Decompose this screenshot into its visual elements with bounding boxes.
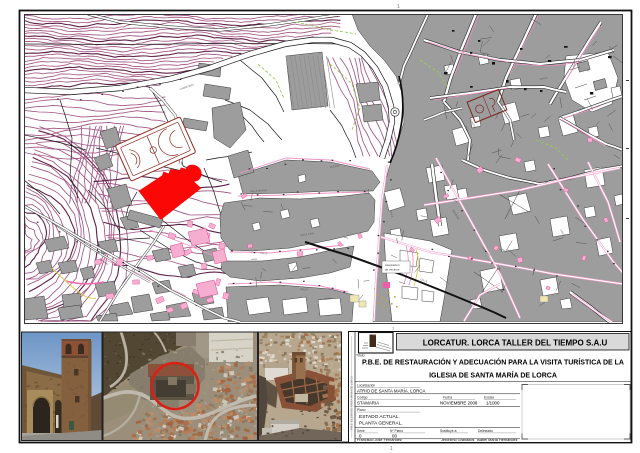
svg-text:PLANTA GENERAL.: PLANTA GENERAL. bbox=[359, 421, 403, 427]
svg-text:NOVIEMBRE 2008: NOVIEMBRE 2008 bbox=[440, 401, 478, 406]
svg-text:Sustituye a:: Sustituye a: bbox=[440, 429, 457, 433]
svg-text:CALLE: CALLE bbox=[300, 288, 308, 292]
svg-text:Jerónimo Granados: Jerónimo Granados bbox=[441, 438, 474, 442]
svg-text:ATRIO DE SANTA MARÍA. LORCA: ATRIO DE SANTA MARÍA. LORCA bbox=[357, 389, 425, 394]
svg-text:P.B.E. DE RESTAURACIÓN Y ADECU: P.B.E. DE RESTAURACIÓN Y ADECUACIÓN PARA… bbox=[362, 358, 624, 367]
svg-text:Delineado: Delineado bbox=[478, 429, 493, 433]
svg-text:Isabel María Hernández: Isabel María Hernández bbox=[477, 438, 518, 442]
svg-text:LORCATUR. LORCA TALLER DEL TIE: LORCATUR. LORCA TALLER DEL TIEMPO S.A.U bbox=[423, 339, 608, 348]
svg-text:Plano: Plano bbox=[357, 408, 366, 412]
svg-text:IGLESIA DE SANTA MARÍA DE LORC: IGLESIA DE SANTA MARÍA DE LORCA bbox=[429, 371, 557, 380]
svg-text:Código: Código bbox=[357, 395, 368, 399]
svg-text:Nº Plano: Nº Plano bbox=[390, 429, 403, 433]
svg-text:Fecha: Fecha bbox=[443, 395, 452, 399]
svg-text:ESTADO ACTUAL.: ESTADO ACTUAL. bbox=[359, 414, 400, 420]
svg-text:1: 1 bbox=[397, 4, 400, 10]
svg-text:Localización: Localización bbox=[357, 384, 375, 388]
svg-text:de vecinos: de vecinos bbox=[385, 268, 400, 272]
svg-text:Francisco José Fernández: Francisco José Fernández bbox=[357, 438, 402, 442]
svg-text:Asociación: Asociación bbox=[385, 263, 400, 267]
svg-text:STAMARIA: STAMARIA bbox=[357, 401, 379, 406]
svg-text:Serie: Serie bbox=[357, 429, 365, 433]
svg-text:CALLE: CALLE bbox=[260, 252, 268, 255]
svg-text:1/1000: 1/1000 bbox=[486, 401, 500, 406]
svg-text:1: 1 bbox=[390, 446, 393, 452]
svg-text:Escala: Escala bbox=[484, 395, 494, 399]
svg-text:Título: Título bbox=[356, 354, 365, 358]
